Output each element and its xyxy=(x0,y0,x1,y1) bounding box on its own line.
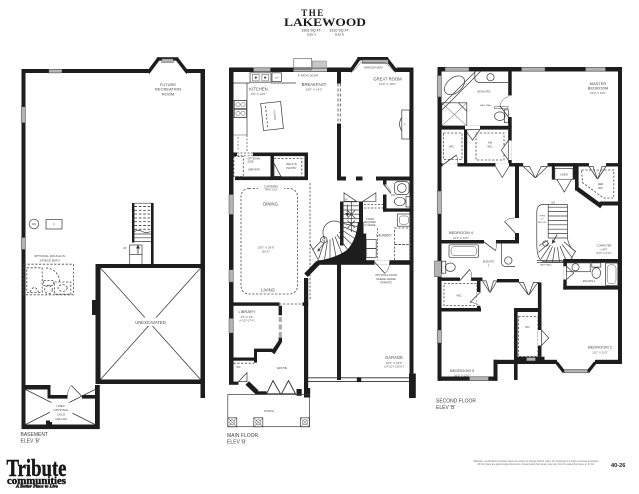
svg-text:CELLAR: CELLAR xyxy=(55,417,68,421)
svg-text:BEDROOM 4: BEDROOM 4 xyxy=(449,230,474,235)
svg-text:LIVING: LIVING xyxy=(261,288,275,293)
svg-text:LOFT: LOFT xyxy=(601,247,608,251)
svg-text:SIDE: SIDE xyxy=(248,160,254,164)
svg-text:40-26: 40-26 xyxy=(611,463,625,469)
svg-text:BEDROOM 3: BEDROOM 3 xyxy=(450,368,475,373)
svg-text:OPEN: OPEN xyxy=(539,216,546,218)
svg-text:All floor plans are approximat: All floor plans are approximate dimensio… xyxy=(477,463,595,466)
svg-text:HALF WALL: HALF WALL xyxy=(540,263,553,266)
svg-text:11'0" X 12'0": 11'0" X 12'0" xyxy=(592,350,608,354)
svg-text:LINEN: LINEN xyxy=(560,173,568,177)
svg-text:ELEV. A: ELEV. A xyxy=(307,34,316,37)
svg-text:ELEV 'B': ELEV 'B' xyxy=(227,439,246,445)
svg-text:TRAY CLG: TRAY CLG xyxy=(265,188,278,192)
svg-text:Materials, specifications and: Materials, specifications and floor plan… xyxy=(474,460,599,463)
svg-text:PERMITS: PERMITS xyxy=(380,281,392,285)
svg-text:9'9" X 14'0": 9'9" X 14'0" xyxy=(251,92,266,96)
svg-text:VESTIB.: VESTIB. xyxy=(277,366,288,370)
svg-text:BELOW: BELOW xyxy=(538,222,547,224)
svg-text:BEDROOM 2: BEDROOM 2 xyxy=(588,345,613,350)
svg-text:TO: TO xyxy=(541,219,544,221)
svg-text:WH: WH xyxy=(32,222,36,226)
svg-text:UP: UP xyxy=(123,247,127,250)
svg-text:REQUIRED: REQUIRED xyxy=(364,222,376,224)
svg-text:BREAKFAST: BREAKFAST xyxy=(302,82,327,87)
svg-text:LIBRARY: LIBRARY xyxy=(238,309,255,314)
svg-text:WIC: WIC xyxy=(449,145,454,149)
svg-text:6' PATIO DOOR: 6' PATIO DOOR xyxy=(298,74,318,78)
svg-text:PORCH: PORCH xyxy=(264,409,274,413)
svg-text:F: F xyxy=(404,124,406,127)
svg-text:DN: DN xyxy=(552,201,556,204)
svg-text:COMPUTER: COMPUTER xyxy=(597,244,612,248)
svg-text:STAIRS: STAIRS xyxy=(366,218,375,221)
svg-text:PR: PR xyxy=(391,193,395,197)
svg-text:3303 SQ.FT.: 3303 SQ.FT. xyxy=(301,29,321,33)
svg-text:WC: WC xyxy=(236,365,240,369)
svg-text:COLD: COLD xyxy=(57,413,66,417)
svg-text:3310 SQ.FT.: 3310 SQ.FT. xyxy=(329,29,349,33)
svg-text:WIC: WIC xyxy=(456,294,461,298)
svg-text:3: 3 xyxy=(488,263,490,267)
svg-text:UNEX.: UNEX. xyxy=(56,404,65,408)
svg-text:ENSUITE: ENSUITE xyxy=(483,260,495,264)
svg-text:(4'10") (7'4"): (4'10") (7'4") xyxy=(239,319,254,323)
svg-text:10'0" X 18'6": 10'0" X 18'6" xyxy=(379,82,396,86)
svg-text:HER: HER xyxy=(598,182,604,186)
svg-text:ISLAND: ISLAND xyxy=(273,110,278,120)
svg-text:UNEXCAVATED: UNEXCAVATED xyxy=(135,320,165,325)
svg-text:10'0" X 10'0": 10'0" X 10'0" xyxy=(453,236,469,240)
svg-text:ELEV. B: ELEV. B xyxy=(335,34,344,37)
svg-text:WIC: WIC xyxy=(525,326,530,329)
svg-text:ROOM: ROOM xyxy=(162,91,174,96)
svg-text:10'0" X 14'0": 10'0" X 14'0" xyxy=(306,88,323,92)
svg-text:LAKEWOOD: LAKEWOOD xyxy=(284,17,366,29)
svg-text:MAIN FLOOR: MAIN FLOOR xyxy=(227,433,259,439)
svg-text:WALK IN: WALK IN xyxy=(286,162,297,166)
svg-text:WHERE GRADE: WHERE GRADE xyxy=(376,277,396,281)
svg-text:HIS: HIS xyxy=(488,141,493,145)
svg-text:16'0" X 16'0": 16'0" X 16'0" xyxy=(590,91,606,95)
svg-text:DN: DN xyxy=(344,199,348,202)
svg-text:LAUNDRY: LAUNDRY xyxy=(376,234,392,238)
svg-text:KITCHEN: KITCHEN xyxy=(249,87,267,92)
svg-text:3-PIECE BATH: 3-PIECE BATH xyxy=(39,258,59,262)
svg-text:(26'2"): (26'2") xyxy=(262,249,271,253)
svg-text:(37'10") (32'0"): (37'10") (32'0") xyxy=(384,365,404,369)
svg-text:F: F xyxy=(53,223,55,227)
svg-text:ELEV 'B': ELEV 'B' xyxy=(436,405,455,411)
svg-text:SECOND FLOOR: SECOND FLOOR xyxy=(436,399,476,405)
svg-text:WINDOW SEAT: WINDOW SEAT xyxy=(364,66,383,70)
svg-text:10'0" X 12'0": 10'0" X 12'0" xyxy=(454,374,470,378)
svg-text:ENSUITE 2: ENSUITE 2 xyxy=(583,280,596,283)
svg-text:HALF WALL: HALF WALL xyxy=(480,104,493,107)
svg-text:BASEMENT: BASEMENT xyxy=(21,432,49,438)
svg-text:DW: DW xyxy=(275,78,280,80)
svg-text:PANTRY: PANTRY xyxy=(286,166,297,170)
svg-text:DINING: DINING xyxy=(263,202,278,207)
svg-text:ENSUITE: ENSUITE xyxy=(477,90,490,94)
svg-text:WIC: WIC xyxy=(487,144,492,148)
svg-text:GREAT ROOM: GREAT ROOM xyxy=(373,77,402,82)
svg-text:OPTIONAL DOOR: OPTIONAL DOOR xyxy=(375,273,397,277)
svg-text:ELEV 'B': ELEV 'B' xyxy=(21,438,40,444)
svg-text:WIC: WIC xyxy=(598,186,603,190)
svg-text:8'10" X 9'10": 8'10" X 9'10" xyxy=(597,251,612,255)
svg-text:GARAGE: GARAGE xyxy=(385,355,403,360)
svg-text:A Better Place to Live: A Better Place to Live xyxy=(15,485,59,489)
svg-text:IF GRADE: IF GRADE xyxy=(365,224,376,227)
svg-text:OPTIONAL: OPTIONAL xyxy=(53,408,69,412)
svg-text:SERVERY: SERVERY xyxy=(248,168,261,172)
